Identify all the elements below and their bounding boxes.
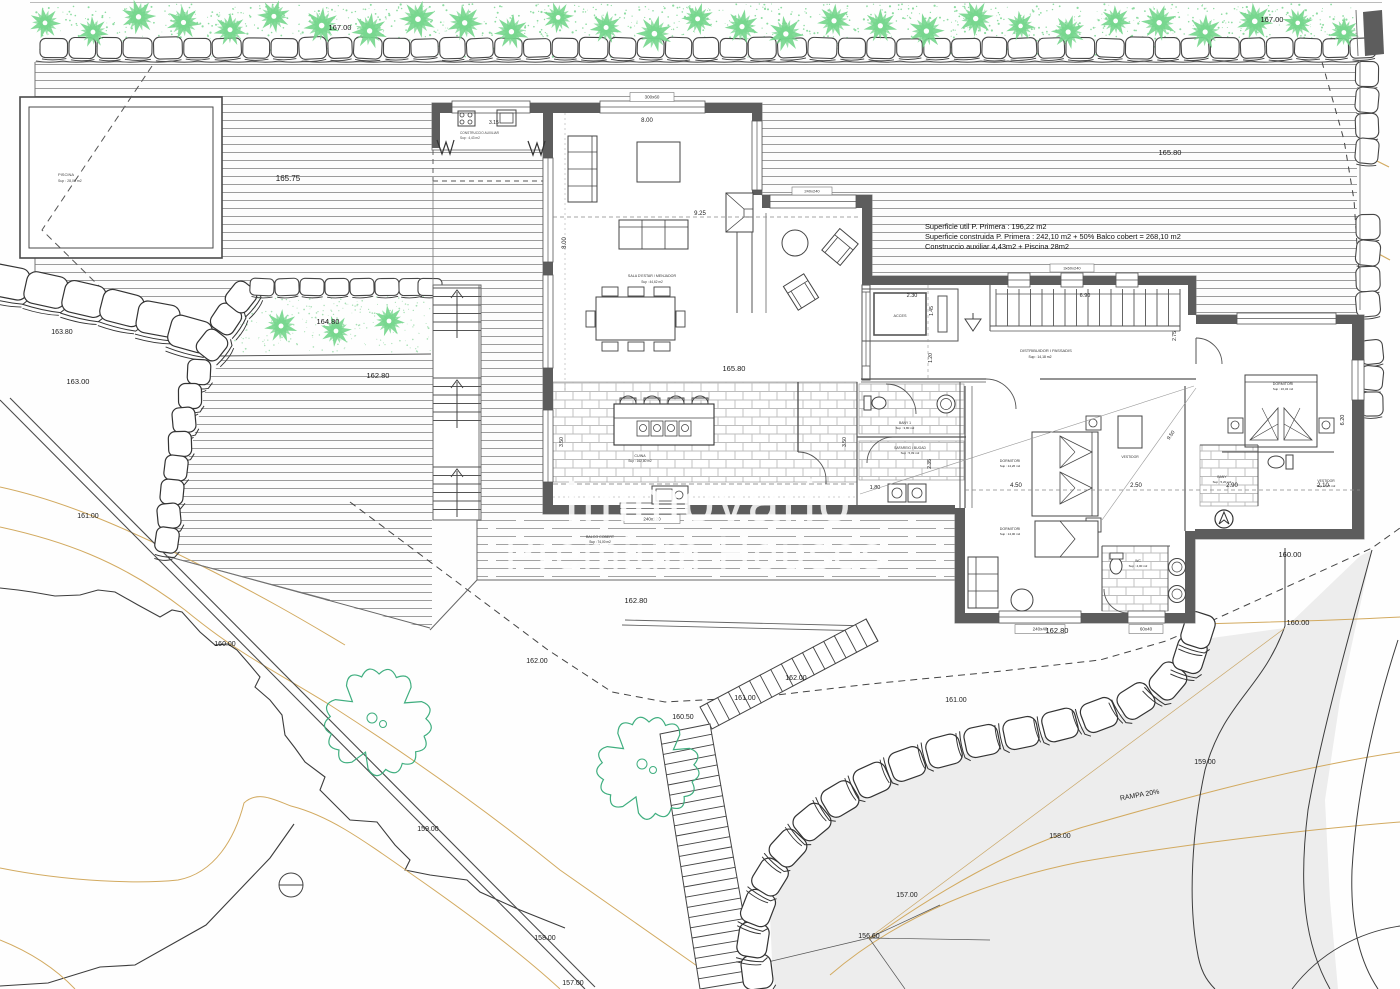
svg-text:6.20: 6.20 <box>1340 415 1346 426</box>
svg-text:1.45: 1.45 <box>929 306 935 316</box>
svg-text:Sup : 3,80 m2: Sup : 3,80 m2 <box>896 426 915 430</box>
svg-text:160.00: 160.00 <box>1287 618 1310 627</box>
svg-text:BANY: BANY <box>1217 475 1227 479</box>
svg-text:160.00: 160.00 <box>1279 550 1302 559</box>
svg-text:DORMITORI: DORMITORI <box>1000 459 1021 463</box>
svg-text:3.50: 3.50 <box>559 437 565 447</box>
svg-text:Sup : 4,00 m2: Sup : 4,00 m2 <box>1129 564 1148 568</box>
svg-text:Sup : 44,62 m2: Sup : 44,62 m2 <box>641 280 663 284</box>
svg-text:2.50: 2.50 <box>1130 483 1142 489</box>
svg-text:161.00: 161.00 <box>77 513 99 520</box>
svg-text:163.00: 163.00 <box>67 377 90 386</box>
svg-text:CONSTRUCCIO AUXILIAR: CONSTRUCCIO AUXILIAR <box>460 131 500 135</box>
svg-text:300x60: 300x60 <box>645 95 660 100</box>
svg-text:60x40: 60x40 <box>1140 627 1153 632</box>
svg-text:156.60: 156.60 <box>858 933 880 940</box>
svg-text:Superficie util P. Primera : 1: Superficie util P. Primera : 196,22 m2 <box>925 222 1046 231</box>
svg-text:165.75: 165.75 <box>276 174 301 183</box>
svg-text:6.90: 6.90 <box>1080 293 1091 299</box>
svg-text:PISCINA: PISCINA <box>58 172 74 177</box>
svg-text:2.75: 2.75 <box>1172 331 1178 341</box>
svg-text:2.30: 2.30 <box>907 293 918 299</box>
svg-text:Superficie construida P. Prime: Superficie construida P. Primera : 242,1… <box>925 232 1181 241</box>
svg-text:4.50: 4.50 <box>1010 483 1022 489</box>
svg-text:VESTIDOR: VESTIDOR <box>1121 455 1139 459</box>
svg-text:Sup : 14,00 m2: Sup : 14,00 m2 <box>1000 532 1021 536</box>
svg-text:161.00: 161.00 <box>945 697 967 704</box>
svg-text:165.80: 165.80 <box>1159 148 1182 157</box>
svg-text:Premium Houses: Premium Houses <box>505 527 886 579</box>
svg-text:161.00: 161.00 <box>734 695 756 702</box>
svg-text:Immovario: Immovario <box>564 469 853 534</box>
svg-text:DORMITORI: DORMITORI <box>1273 382 1294 386</box>
svg-text:3.50: 3.50 <box>842 437 848 447</box>
svg-text:240x240: 240x240 <box>804 188 820 193</box>
svg-text:158.00: 158.00 <box>534 935 556 942</box>
svg-text:165.80: 165.80 <box>723 364 746 373</box>
svg-text:3.15: 3.15 <box>489 120 499 126</box>
svg-text:162.80: 162.80 <box>367 371 390 380</box>
svg-text:3x60x240: 3x60x240 <box>1063 265 1081 270</box>
svg-text:Sup : 14,26 m2: Sup : 14,26 m2 <box>1000 464 1021 468</box>
svg-text:159.00: 159.00 <box>1194 759 1216 766</box>
svg-text:Sup : 4,43 m2: Sup : 4,43 m2 <box>460 136 480 140</box>
svg-text:157.00: 157.00 <box>896 892 918 899</box>
svg-text:SALA D'ESTAR / MENJADOR: SALA D'ESTAR / MENJADOR <box>628 274 677 278</box>
svg-text:2.90: 2.90 <box>1226 483 1238 489</box>
svg-text:167.00: 167.00 <box>329 23 352 32</box>
svg-text:8.00: 8.00 <box>641 118 653 124</box>
svg-text:158.00: 158.00 <box>1049 833 1071 840</box>
svg-text:2.10: 2.10 <box>1317 483 1329 489</box>
svg-text:Sup : 5,09 m2: Sup : 5,09 m2 <box>901 451 920 455</box>
svg-text:162.80: 162.80 <box>625 596 648 605</box>
svg-text:ACCES: ACCES <box>893 314 907 318</box>
svg-text:163.80: 163.80 <box>51 329 73 336</box>
svg-text:DISTRIBUIDOR I PASSADIS: DISTRIBUIDOR I PASSADIS <box>1020 348 1072 353</box>
svg-text:1.20: 1.20 <box>928 353 934 363</box>
svg-text:Sup : 28,00 m2: Sup : 28,00 m2 <box>58 179 82 183</box>
svg-text:Sup : 162,80 m2: Sup : 162,80 m2 <box>628 459 652 463</box>
svg-text:160.50: 160.50 <box>672 714 694 721</box>
svg-text:2.35: 2.35 <box>927 459 933 469</box>
svg-text:WC: WC <box>1135 559 1141 563</box>
svg-text:160.00: 160.00 <box>214 641 236 648</box>
svg-text:162.80: 162.80 <box>1046 626 1069 635</box>
svg-text:162.00: 162.00 <box>526 658 548 665</box>
svg-text:162.00: 162.00 <box>785 675 807 682</box>
svg-text:Sup : 16,34 m2: Sup : 16,34 m2 <box>1273 387 1294 391</box>
svg-text:DORMITORI: DORMITORI <box>1000 527 1021 531</box>
svg-text:BANY 1: BANY 1 <box>899 421 911 425</box>
svg-text:159.00: 159.00 <box>417 826 439 833</box>
svg-text:Construccio auxiliar 4,43m2 +: Construccio auxiliar 4,43m2 + Piscina 28… <box>925 242 1069 251</box>
svg-text:167.00: 167.00 <box>1261 15 1284 24</box>
svg-text:9.25: 9.25 <box>694 211 706 217</box>
svg-text:SAFAREIG / BUGAD: SAFAREIG / BUGAD <box>894 446 926 450</box>
svg-text:164.80: 164.80 <box>317 317 340 326</box>
svg-text:CUINA: CUINA <box>634 454 646 458</box>
svg-text:157.00: 157.00 <box>562 980 584 987</box>
svg-text:Sup : 14,18 m2: Sup : 14,18 m2 <box>1029 355 1052 359</box>
